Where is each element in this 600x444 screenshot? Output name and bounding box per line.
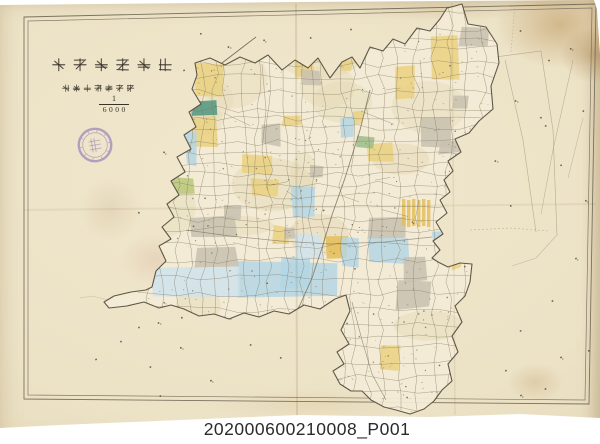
scale-denominator: 6000 (93, 106, 135, 114)
map-canvas (0, 0, 600, 444)
scale-fraction: 1 6000 (93, 94, 135, 114)
watermark-label: 202000600210008_P001 (7, 416, 600, 444)
scale-numerator: 1 (93, 94, 135, 103)
title-calligraphy (53, 59, 171, 92)
map-sheet-paper: 圖地庄仔庄新 里下西港廳緱阿 1 6000 (0, 0, 600, 444)
ink-stamp-seal (76, 126, 114, 164)
watermark-id: 202000600210008_P001 (204, 419, 411, 439)
page: { "artifact": { "kind": "scanned histori… (0, 0, 600, 444)
